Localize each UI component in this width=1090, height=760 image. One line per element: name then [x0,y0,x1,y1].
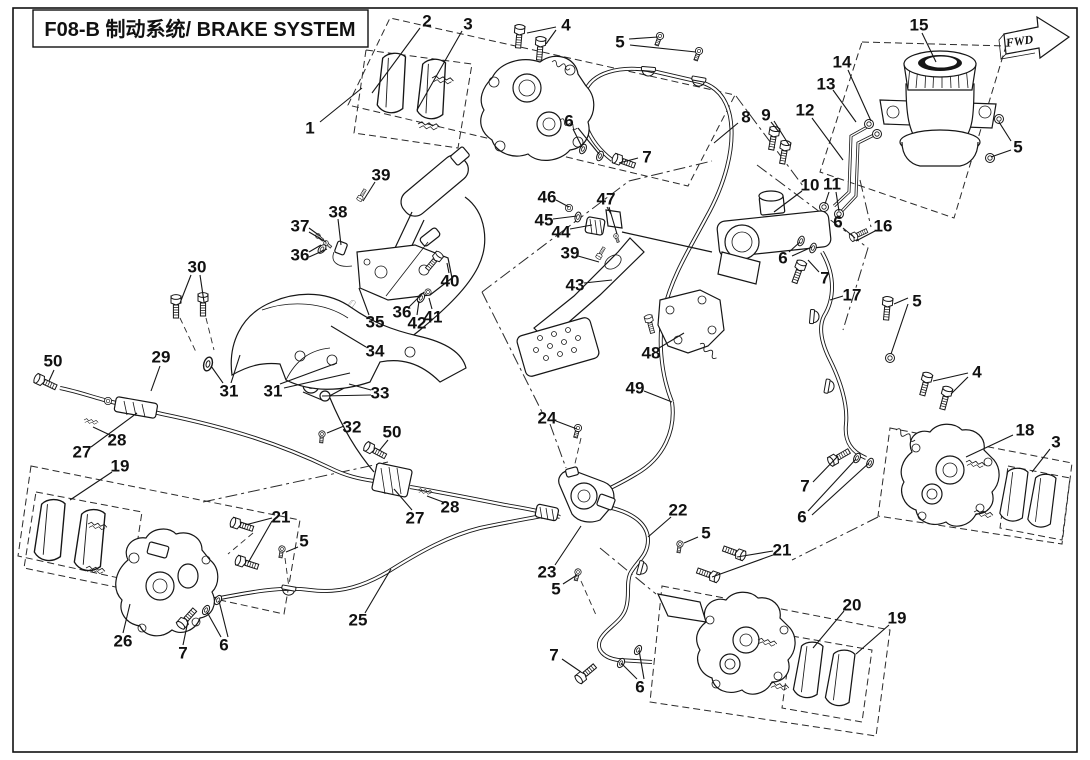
brake-pad [998,466,1033,523]
callout-label-14: 14 [833,53,852,72]
callout-label-25: 25 [349,611,368,630]
callout-label-17: 17 [843,286,862,305]
leader-line-8 [714,123,738,143]
adjuster-nut [104,397,111,404]
callout-label-10: 10 [801,176,820,195]
fwd-direction-indicator: FWD [999,17,1069,59]
leader-line-5 [286,547,298,552]
mount-bolt [171,295,181,318]
outlet-fitting [820,203,829,212]
leader-line-12 [812,118,843,160]
caliper-bolt [722,544,747,561]
rear-right-hose [599,508,652,662]
junction-screw [572,424,582,439]
callout-label-16: 16 [874,217,893,236]
clamp-screw [573,568,582,581]
callout-label-30: 30 [188,258,207,277]
leader-line-46 [556,200,569,207]
front-right-hose [809,252,866,458]
leader-line-5 [684,537,698,543]
leader-line-35 [359,288,369,315]
mount-bolt [777,140,791,165]
rear-left-hose [210,514,552,600]
reservoir-pipes [834,120,882,213]
pin [356,188,367,202]
callout-label-5: 5 [701,524,710,543]
callout-label-11: 11 [823,175,841,194]
mount-bolt [790,259,807,284]
hose-clamp [281,585,296,596]
pad-retainer-clip [769,682,789,691]
callout-label-3: 3 [463,15,472,34]
caliper-bolt [229,517,254,534]
caliper-bolt [513,24,525,48]
front-left-pads-box [354,50,472,148]
callout-label-15: 15 [910,16,929,35]
callout-label-19: 19 [888,609,907,628]
caliper-bolt [234,555,259,572]
mount-nut [886,354,895,363]
callout-label-34: 34 [366,342,385,361]
hose-clamp [641,66,656,76]
pipe-fitting-nut [873,130,882,139]
leader-line-13 [833,90,856,122]
callout-label-18: 18 [1016,421,1035,440]
callout-label-6: 6 [564,112,573,131]
callout-label-49: 49 [626,379,645,398]
callout-label-24: 24 [538,409,557,428]
rear-left-caliper-assembly [32,497,286,635]
callout-label-8: 8 [741,108,750,127]
leader-line-24 [556,421,577,429]
callout-label-27: 27 [406,509,425,528]
leader-line-4 [951,377,968,394]
leader-line-7 [808,260,819,272]
leader-line-14 [848,70,871,121]
leader-line-5 [999,122,1011,141]
callout-label-5: 5 [299,532,308,551]
callout-label-26: 26 [114,632,133,651]
callout-label-19: 19 [111,457,130,476]
callout-label-50: 50 [44,352,63,371]
caliper-bolt [917,371,933,396]
callout-label-6: 6 [219,636,228,655]
leader-line-6 [219,601,228,637]
callout-label-31: 31 [264,382,283,401]
callout-label-5: 5 [551,580,560,599]
hose-clamp [824,379,835,394]
brake-pad [415,57,450,120]
callout-label-4: 4 [561,16,571,35]
callout-label-3: 3 [1051,433,1060,452]
caliper-bolt [696,566,721,583]
caliper-body [481,56,594,160]
callout-label-12: 12 [796,101,815,120]
callout-label-5: 5 [1013,138,1022,157]
leader-line-6 [639,650,644,679]
callout-label-27: 27 [73,443,92,462]
rod-nut [425,289,431,295]
banjo-washer [865,457,875,469]
callout-label-5: 5 [912,292,921,311]
callout-label-29: 29 [152,348,171,367]
leader-line-23 [555,526,581,565]
pipe-fitting-nut [865,120,874,129]
clamp-screw [277,545,285,558]
clamp-screw [675,540,683,553]
callout-label-39: 39 [561,244,580,263]
callout-label-33: 33 [371,384,390,403]
callout-label-5: 5 [615,33,624,52]
callout-label-39: 39 [372,166,391,185]
callout-label-6: 6 [778,249,787,268]
callout-label-21: 21 [272,508,291,527]
callout-label-43: 43 [566,276,585,295]
leader-line-4 [933,373,968,381]
clamp-screw [653,31,664,46]
callout-label-35: 35 [366,313,385,332]
callout-label-1: 1 [305,119,314,138]
leader-line-21 [245,518,272,525]
leader-line-4 [546,30,556,44]
callout-label-32: 32 [343,418,362,437]
callout-label-7: 7 [178,644,187,663]
washer [202,356,214,372]
callout-label-28: 28 [441,498,460,517]
callout-label-7: 7 [642,148,651,167]
callout-label-41: 41 [424,308,443,327]
leader-line-6 [808,459,856,511]
callout-label-31: 31 [220,382,239,401]
callout-label-20: 20 [843,596,862,615]
clamp-screw [692,46,703,61]
caliper-bolt [937,385,953,410]
callout-label-28: 28 [108,431,127,450]
cable-anchor-bolt [362,441,387,461]
callout-label-6: 6 [797,508,806,527]
callout-label-48: 48 [642,344,661,363]
callout-label-7: 7 [800,477,809,496]
pad-retainer-clip [417,121,439,130]
diagram-canvas: F08-B 制动系统/ BRAKE SYSTEM FWD [0,0,1090,760]
leader-line-5 [630,45,696,52]
cable-clip [84,418,99,425]
leader-line-50 [49,370,54,381]
brake-system-parts-diagram: F08-B 制动系统/ BRAKE SYSTEM FWD [0,0,1090,760]
brake-pad [32,497,70,562]
callout-label-37: 37 [291,217,310,236]
brake-pad [791,640,827,700]
callout-label-50: 50 [383,423,402,442]
callout-label-38: 38 [329,203,348,222]
leader-line-29 [151,366,160,391]
brake-pad [375,51,410,114]
leader-line-5 [894,298,908,304]
leader-line-22 [648,517,671,537]
leader-line-3 [1032,449,1050,472]
hose-clamp [809,309,819,324]
leader-line-7 [813,456,838,482]
callout-label-13: 13 [817,75,836,94]
leader-line-31 [211,366,223,383]
leader-line-5 [991,150,1011,157]
mount-bolt [881,296,893,320]
brake-line-junction [535,424,616,522]
cable-anchor-bolt [33,373,58,392]
clevis-pin [613,233,621,243]
caliper-bolt [534,36,546,60]
bracket-bolt [644,314,657,334]
pedal-bracket [658,290,724,353]
page-title: F08-B 制动系统/ BRAKE SYSTEM [44,17,355,41]
callout-label-4: 4 [972,363,982,382]
callout-label-47: 47 [597,190,616,209]
callout-label-40: 40 [441,272,460,291]
callout-label-2: 2 [422,12,431,31]
mount-bolt [766,126,780,151]
pin [595,246,606,260]
equalizer-bolt [318,431,325,444]
callout-label-6: 6 [635,678,644,697]
brake-pad [1026,472,1061,529]
leader-line-7 [562,659,581,672]
callout-label-46: 46 [538,188,557,207]
leader-line-11 [825,192,829,204]
brake-fluid-reservoir [880,51,1004,166]
callout-label-6: 6 [833,213,842,232]
leader-line-4 [527,27,556,33]
leader-line-5 [891,304,908,354]
callout-label-9: 9 [761,106,770,125]
callout-label-21: 21 [773,541,792,560]
callout-label-7: 7 [549,646,558,665]
banjo-bolt [574,662,598,685]
front-right-caliper-assembly [826,296,1060,529]
leader-line-32 [327,426,344,433]
pedal-pad [516,316,601,377]
leader-line-1 [320,88,362,122]
callout-label-36: 36 [291,246,310,265]
brake-pedal-assembly [516,238,724,378]
callout-label-44: 44 [552,223,571,242]
callout-label-7: 7 [820,269,829,288]
leader-line-6 [812,463,869,515]
callout-label-22: 22 [669,501,688,520]
leader-line-50 [379,440,388,451]
bracket-nut [986,154,995,163]
brake-pad [72,507,110,572]
leader-line-30 [180,275,191,303]
washer [574,212,582,223]
leader-line-19 [70,472,112,500]
leader-line-6 [207,612,221,637]
leader-line-45 [553,216,577,219]
brake-pad [823,648,859,708]
banjo-washer [633,644,643,656]
leader-line-5 [629,37,658,39]
